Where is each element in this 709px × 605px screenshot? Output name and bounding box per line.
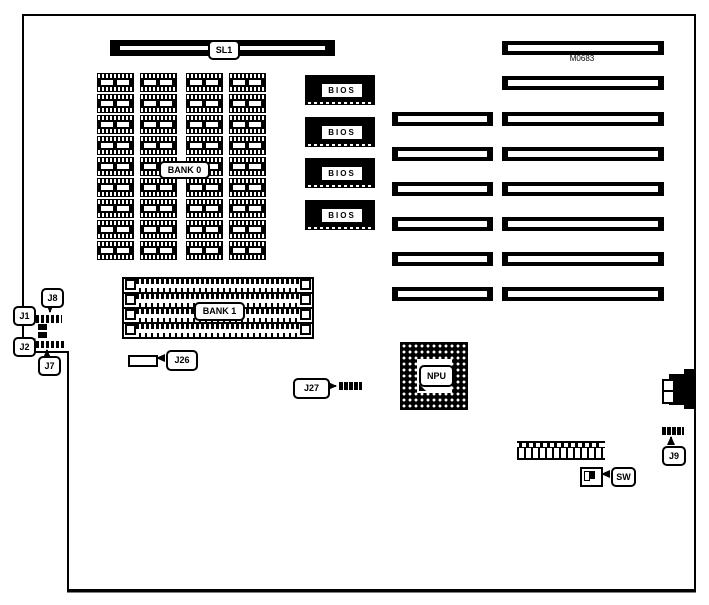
bank1-label: BANK 1 [194,302,245,321]
sl1-label: SL1 [208,40,240,60]
keyboard-connector [684,369,696,409]
j1-label: J1 [13,306,36,326]
model-number-label: M0683 [557,54,607,63]
j8-label: J8 [41,288,64,308]
board-edge [23,15,695,590]
j26-label: J26 [166,350,198,371]
j7-label: J7 [38,356,61,376]
keyboard-connector-pin [662,390,675,404]
j2-label: J2 [13,337,36,357]
bank0-label: BANK 0 [159,161,210,179]
board-outline [0,0,709,605]
j27-label: J27 [293,378,330,399]
motherboard-diagram: SL1 M0683 BANK 0 BANK 1 J8 J1 J2 J7 J26 … [0,0,709,605]
label-arrows [29,304,671,474]
npu-label: NPU [419,365,454,387]
sw-label: SW [611,467,636,487]
j9-label: J9 [662,446,686,466]
